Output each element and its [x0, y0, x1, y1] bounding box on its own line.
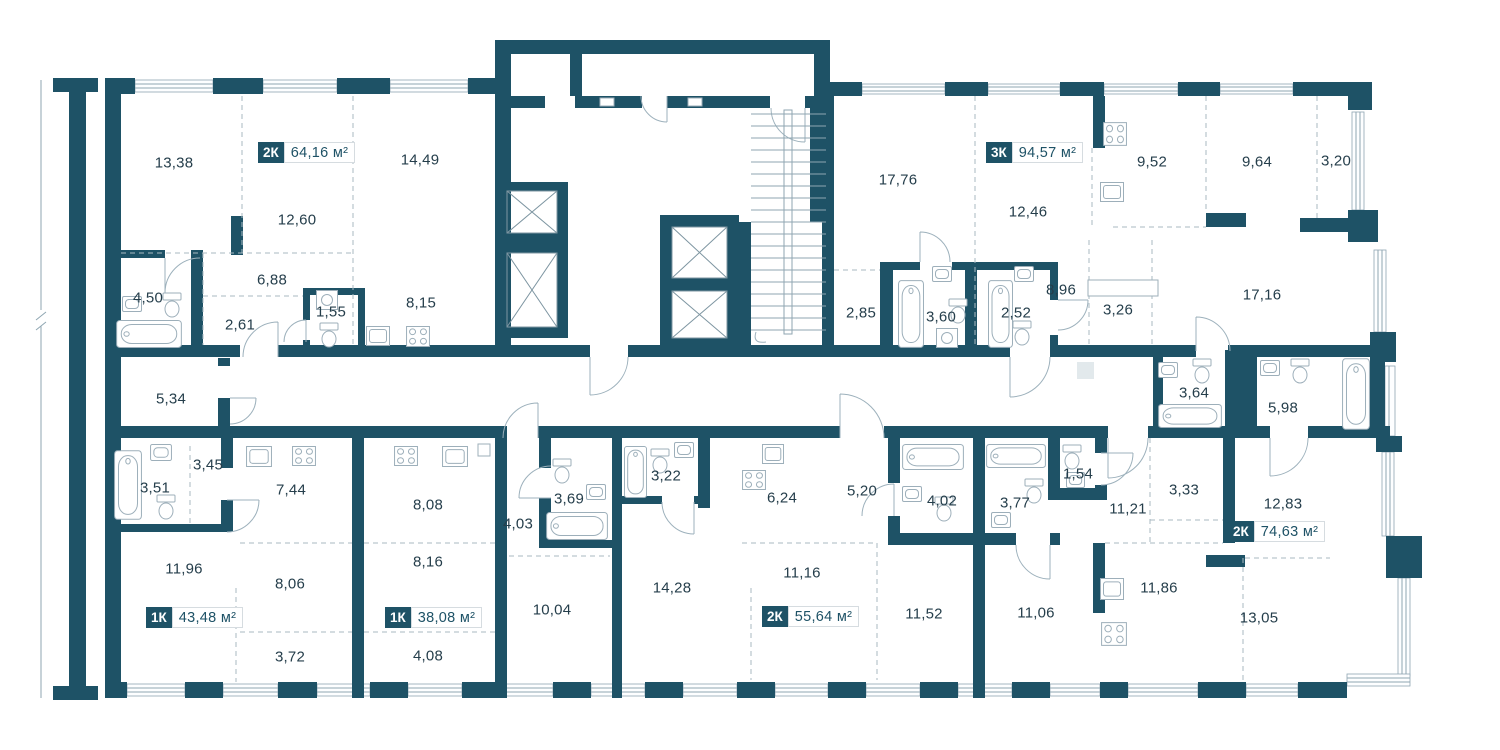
apartment-type-chip: 2К — [258, 142, 284, 163]
room-area-label: 14,28 — [653, 581, 692, 596]
room-area-label: 11,21 — [1109, 502, 1146, 517]
room-area-label: 4,03 — [503, 517, 533, 532]
apartment-area: 94,57 м² — [1012, 142, 1084, 163]
room-area-label: 1,55 — [316, 305, 346, 320]
apartment-type-chip: 2К — [1228, 521, 1254, 542]
room-area-label: 8,16 — [413, 555, 443, 570]
room-area-label: 2,85 — [846, 306, 876, 321]
apartment-type-chip: 1К — [146, 607, 172, 628]
room-area-label: 14,49 — [401, 153, 440, 168]
apartment-badge: 3К94,57 м² — [986, 142, 1083, 163]
apartment-badge: 1К43,48 м² — [146, 607, 243, 628]
room-area-label: 10,04 — [533, 603, 572, 618]
room-area-label: 9,52 — [1137, 155, 1167, 170]
room-area-label: 11,06 — [1017, 606, 1054, 621]
room-area-label: 3,60 — [926, 310, 956, 325]
apartment-badge: 1К38,08 м² — [385, 607, 482, 628]
room-area-label: 3,45 — [193, 458, 223, 473]
room-area-label: 11,96 — [165, 562, 202, 577]
room-area-label: 8,08 — [413, 498, 443, 513]
apartment-area: 64,16 м² — [284, 142, 356, 163]
room-area-label: 2,52 — [1001, 306, 1031, 321]
room-area-label: 3,77 — [1000, 496, 1030, 511]
room-area-label: 9,64 — [1242, 155, 1272, 170]
room-area-label: 3,22 — [651, 469, 681, 484]
room-area-label: 8,15 — [406, 296, 436, 311]
apartment-badge: 2К64,16 м² — [258, 142, 355, 163]
room-area-label: 3,26 — [1103, 303, 1133, 318]
room-area-label: 17,16 — [1243, 288, 1282, 303]
room-area-label: 12,46 — [1009, 205, 1048, 220]
room-area-label: 3,64 — [1179, 386, 1209, 401]
room-area-label: 8,06 — [275, 577, 305, 592]
room-area-label: 1,54 — [1063, 467, 1093, 482]
room-area-label: 2,61 — [225, 318, 255, 333]
room-area-label: 5,34 — [156, 392, 186, 407]
apartment-area: 38,08 м² — [411, 607, 483, 628]
room-area-label: 4,02 — [927, 494, 957, 509]
room-area-label: 5,98 — [1268, 401, 1298, 416]
apartment-area: 55,64 м² — [788, 606, 860, 627]
apartment-area: 43,48 м² — [172, 607, 244, 628]
room-area-label: 3,72 — [275, 650, 305, 665]
room-area-label: 12,60 — [278, 213, 317, 228]
room-area-label: 6,88 — [257, 273, 287, 288]
room-area-label: 11,86 — [1140, 581, 1177, 596]
room-area-label: 13,05 — [1240, 611, 1279, 626]
apartment-type-chip: 1К — [385, 607, 411, 628]
room-area-label: 5,20 — [847, 484, 877, 499]
room-area-label: 13,38 — [155, 156, 194, 171]
apartment-badge: 2К74,63 м² — [1228, 521, 1325, 542]
apartment-area: 74,63 м² — [1254, 521, 1326, 542]
room-area-label: 3,51 — [140, 481, 170, 496]
room-area-label: 3,20 — [1321, 154, 1351, 169]
floor-plan-canvas: 13,3814,4912,606,884,502,611,558,152К64,… — [0, 0, 1500, 750]
room-area-label: 8,96 — [1046, 283, 1076, 298]
room-area-label: 11,52 — [905, 607, 942, 622]
room-area-label: 4,50 — [133, 291, 163, 306]
room-area-label: 7,44 — [276, 483, 306, 498]
room-area-label: 17,76 — [879, 173, 918, 188]
apartment-type-chip: 3К — [986, 142, 1012, 163]
apartment-type-chip: 2К — [762, 606, 788, 627]
apartment-badge: 2К55,64 м² — [762, 606, 859, 627]
room-area-label: 3,69 — [554, 492, 584, 507]
room-area-label: 3,33 — [1169, 483, 1199, 498]
room-area-label: 4,08 — [413, 649, 443, 664]
room-area-label: 6,24 — [767, 491, 797, 506]
labels-layer: 13,3814,4912,606,884,502,611,558,152К64,… — [0, 0, 1500, 750]
room-area-label: 11,16 — [783, 566, 820, 581]
room-area-label: 12,83 — [1264, 497, 1303, 512]
